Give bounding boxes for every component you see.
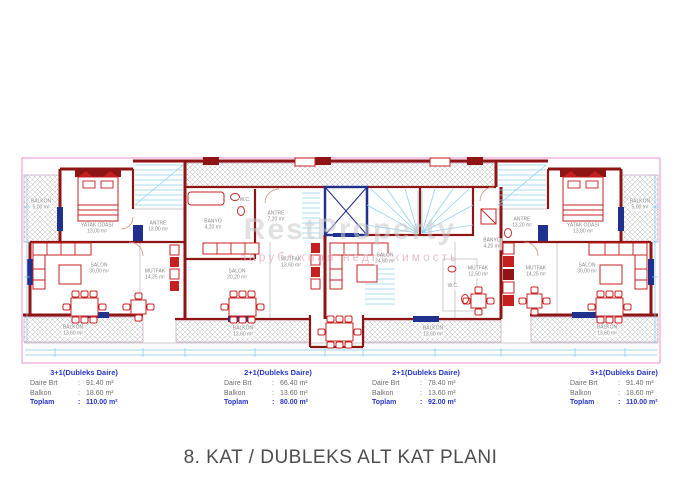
- apartment-info-4: 3+1(Dubleks Daire) Daire Brt:91.40 m² Ba…: [570, 368, 678, 408]
- apartment-row: Daire Brt:91.40 m²: [30, 379, 138, 389]
- room-label-balkon-a: BALKON13,60 m²: [62, 325, 84, 337]
- room-label-yatak-a: YATAK ODASI13,00 m²: [80, 223, 114, 235]
- apartment-info-1: 3+1(Dubleks Daire) Daire Brt:91.40 m² Ba…: [30, 368, 138, 408]
- room-label-salon-d: SALON30,00 m²: [576, 263, 598, 275]
- room-label-mutfak-c: MUTFAK12,50 m²: [467, 266, 489, 278]
- apartment-row-total: Toplam:80.00 m²: [224, 398, 332, 408]
- room-label-antre-a: ANTRE13,00 m²: [147, 221, 169, 233]
- apartment-row: Balkon:18.60 m²: [570, 389, 678, 399]
- room-label-salon-c: SALON24,80 m²: [374, 253, 396, 265]
- floor-plan: RestProperty зарубежная недвижимость BAL…: [15, 147, 666, 365]
- bed-icon: [560, 169, 606, 221]
- apartment-type: 3+1(Dubleks Daire): [30, 368, 138, 377]
- apartment-row-total: Toplam:110.00 m²: [570, 398, 678, 408]
- room-label-balkon-d-right: BALKON5,00 m²: [629, 199, 651, 211]
- apartment-info-2: 2+1(Dubleks Daire) Daire Brt:66.40 m² Ba…: [224, 368, 332, 408]
- room-label-antre-b: ANTRE7,20 m²: [267, 211, 286, 223]
- apartment-type: 2+1(Dubleks Daire): [372, 368, 480, 377]
- room-label-balkon-b: BALKON13,60 m²: [232, 326, 254, 338]
- room-label-balkon-d: BALKON13,60 m²: [596, 325, 618, 337]
- apartment-row-total: Toplam:110.00 m²: [30, 398, 138, 408]
- apartment-row: Balkon:13.60 m²: [224, 389, 332, 399]
- room-label-balkon-c: BALKON13,60 m²: [422, 326, 444, 338]
- watermark-subtext: зарубежная недвижимость: [241, 250, 460, 264]
- apartment-type: 2+1(Dubleks Daire): [224, 368, 332, 377]
- room-label-mutfak-d: MUTFAK14,25 m²: [525, 266, 547, 278]
- room-label-mutfak-a: MUTFAK14,25 m²: [144, 269, 166, 281]
- apartment-row: Daire Brt:66.40 m²: [224, 379, 332, 389]
- floor-plan-page: RestProperty зарубежная недвижимость BAL…: [0, 0, 681, 480]
- apartment-row: Balkon:13.60 m²: [372, 389, 480, 399]
- room-label-balkon-a-left: BALKON5,00 m²: [30, 199, 52, 211]
- floor-plan-drawing: RestProperty зарубежная недвижимость: [15, 147, 666, 365]
- room-label-wc-c: W.C.: [447, 284, 460, 290]
- apartment-row: Daire Brt:91.40 m²: [570, 379, 678, 389]
- room-label-salon-a: SALON30,00 m²: [88, 263, 110, 275]
- apartment-row: Daire Brt:78.40 m²: [372, 379, 480, 389]
- bed-icon: [75, 169, 121, 221]
- apartment-type: 3+1(Dubleks Daire): [570, 368, 678, 377]
- apartment-row-total: Toplam:92.00 m²: [372, 398, 480, 408]
- room-label-mutfak-b: MUTFAK13,60 m²: [280, 257, 302, 269]
- apartment-info-3: 2+1(Dubleks Daire) Daire Brt:78.40 m² Ba…: [372, 368, 480, 408]
- room-label-banyo-d: BANYO4,20 m²: [482, 238, 502, 250]
- room-label-yatak-d: YATAK ODASI13,80 m²: [566, 223, 600, 235]
- room-label-antre-d: ANTRE13,20 m²: [511, 217, 533, 229]
- page-title: 8. KAT / DUBLEKS ALT KAT PLANI: [0, 447, 681, 469]
- room-label-wc-b: W.C.: [239, 198, 252, 204]
- room-label-salon-b: SALON20,20 m²: [226, 269, 248, 281]
- apartment-row: Balkon:18.60 m²: [30, 389, 138, 399]
- room-label-banyo-b: BANYO4,20 m²: [203, 219, 223, 231]
